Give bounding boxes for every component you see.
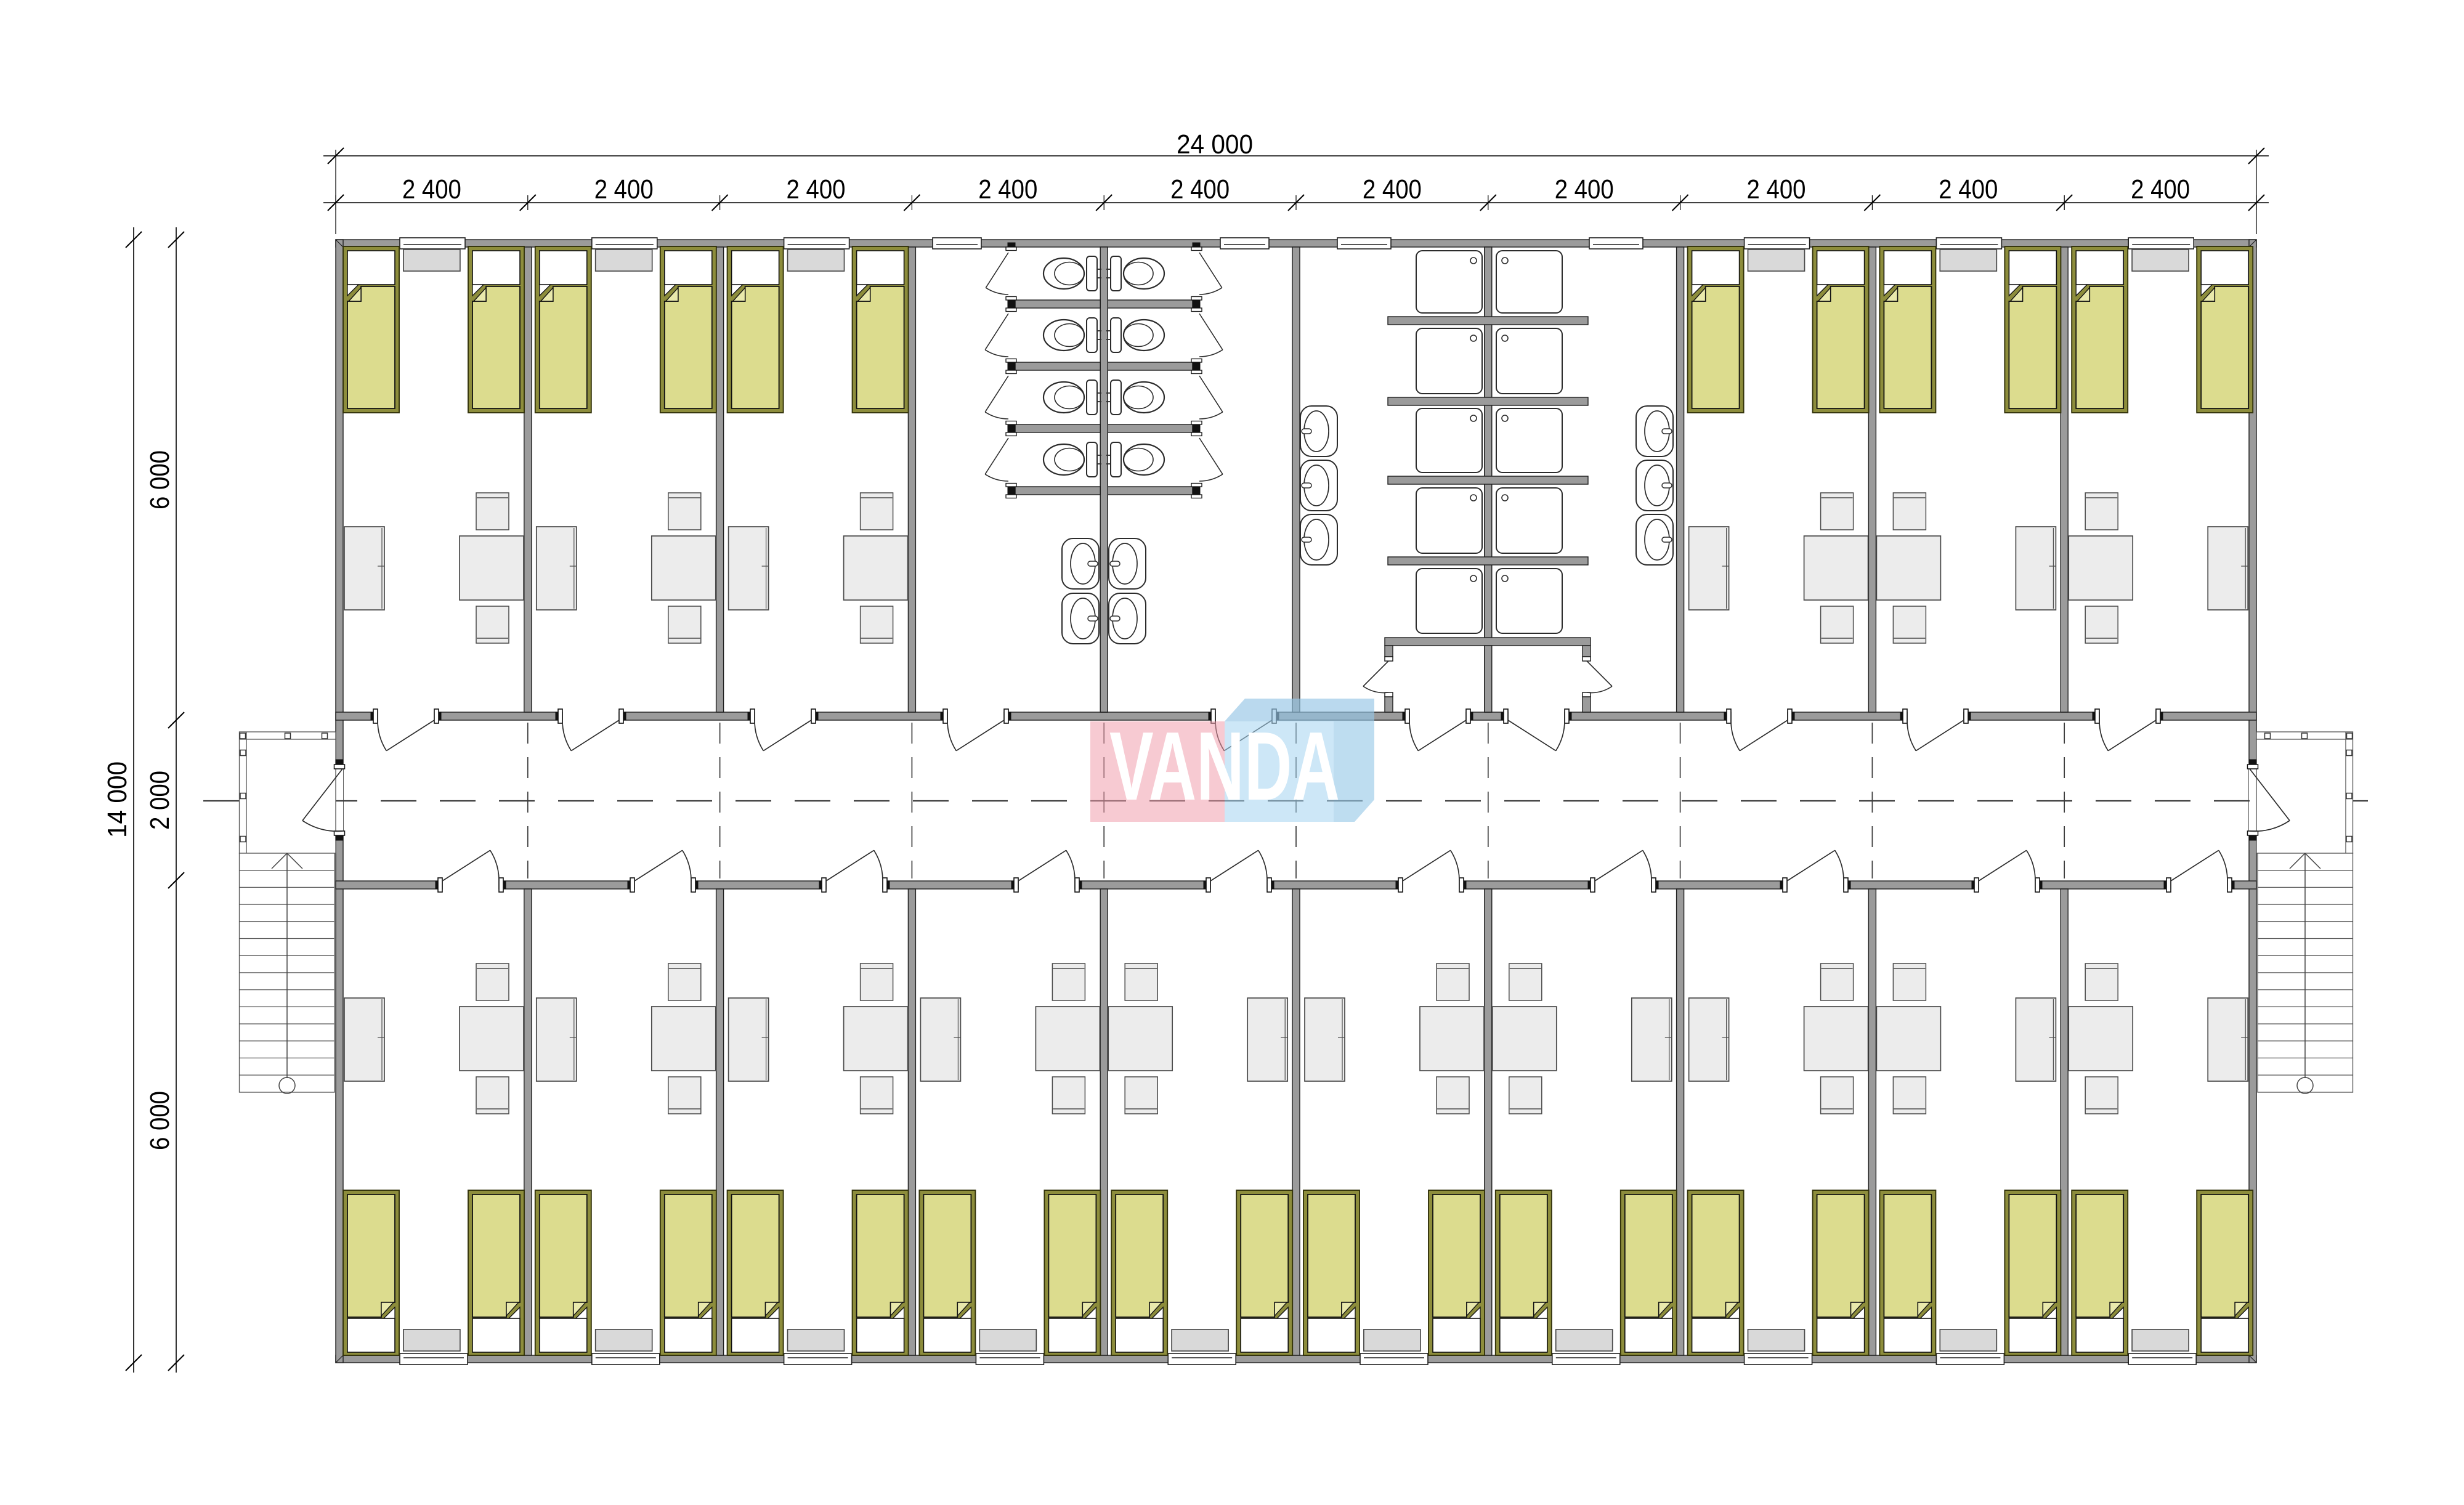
- svg-text:24 000: 24 000: [1177, 129, 1253, 160]
- svg-text:2 400: 2 400: [402, 174, 461, 205]
- svg-text:2 000: 2 000: [145, 771, 175, 830]
- svg-text:2 400: 2 400: [1939, 174, 1998, 205]
- svg-text:6 000: 6 000: [145, 1091, 175, 1150]
- svg-text:2 400: 2 400: [1170, 174, 1230, 205]
- svg-text:2 400: 2 400: [978, 174, 1037, 205]
- svg-text:2 400: 2 400: [2131, 174, 2190, 205]
- svg-text:14 000: 14 000: [102, 761, 132, 838]
- svg-text:2 400: 2 400: [1555, 174, 1614, 205]
- svg-text:2 400: 2 400: [594, 174, 654, 205]
- svg-text:VANDA: VANDA: [1109, 712, 1340, 821]
- svg-text:2 400: 2 400: [1363, 174, 1422, 205]
- svg-text:2 400: 2 400: [787, 174, 846, 205]
- svg-text:2 400: 2 400: [1747, 174, 1806, 205]
- svg-text:6 000: 6 000: [145, 450, 175, 509]
